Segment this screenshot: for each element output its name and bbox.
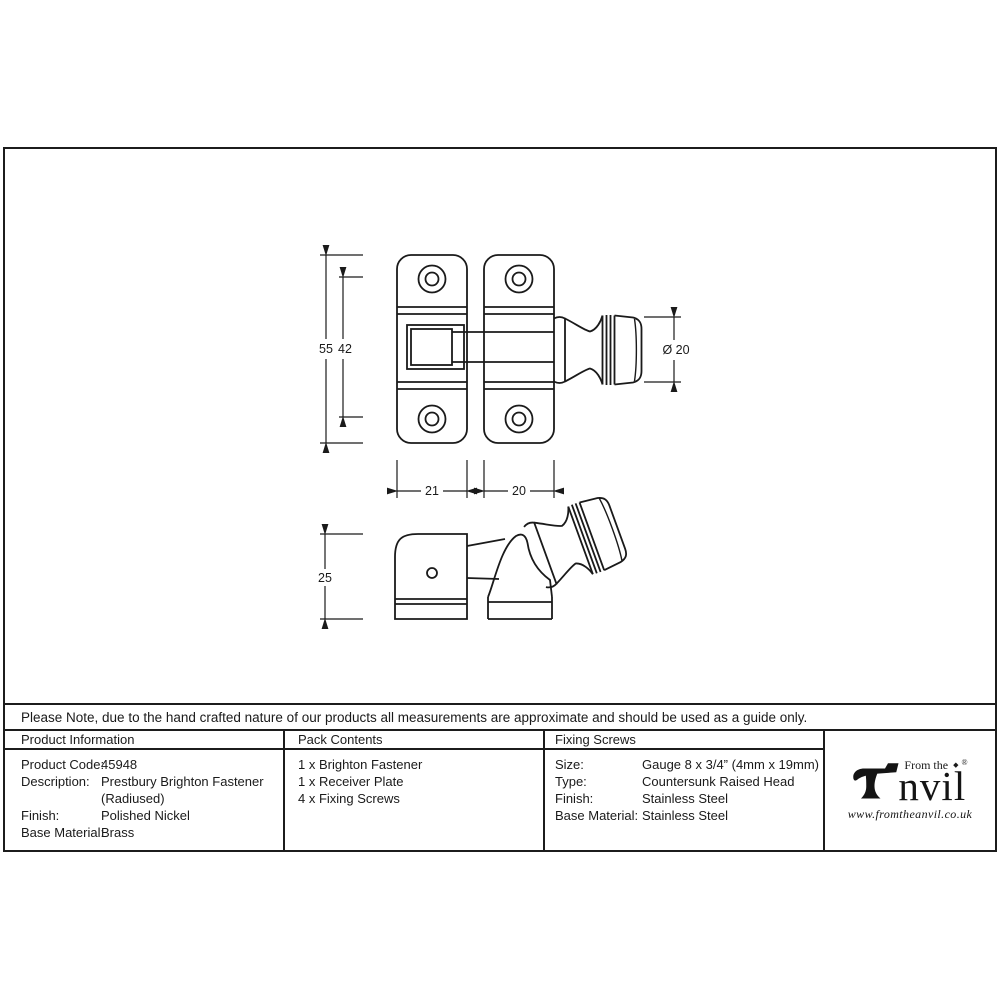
table-row: Base Material: Stainless Steel [555, 807, 819, 824]
knob-front [554, 315, 642, 385]
technical-drawing: 55 42 Ø 20 21 20 25 [5, 149, 995, 703]
product-information-column: Product Information Product Code: 45948 … [5, 731, 285, 850]
dim-overall-height: 55 [319, 342, 333, 356]
brand-name: nvil [898, 771, 967, 802]
note-text: Please Note, due to the hand crafted nat… [21, 710, 807, 725]
fixing-screws-column: Fixing Screws Size: Gauge 8 x 3/4” (4mm … [545, 731, 825, 850]
info-table: Product Information Product Code: 45948 … [5, 731, 995, 850]
screw-hole [506, 266, 533, 293]
anvil-icon [852, 761, 900, 803]
list-item: 4 x Fixing Screws [298, 790, 539, 807]
row-value: Prestbury Brighton Fastener [101, 773, 264, 790]
list-item: 1 x Brighton Fastener [298, 756, 539, 773]
dimension-lines [320, 255, 681, 619]
product-information-header: Product Information [5, 731, 283, 750]
table-row: (Radiused) [21, 790, 279, 807]
plate-band-lines [397, 307, 554, 389]
dim-plate-width-left: 21 [425, 484, 439, 498]
row-value: Gauge 8 x 3/4” (4mm x 19mm) [642, 756, 819, 773]
table-row: Finish: Polished Nickel [21, 807, 279, 824]
brand-website: www.fromtheanvil.co.uk [848, 807, 972, 822]
dim-knob-diameter: Ø 20 [662, 343, 689, 357]
table-row: Description: Prestbury Brighton Fastener [21, 773, 279, 790]
receiver-screw-hole [427, 568, 437, 578]
row-value: Stainless Steel [642, 807, 728, 824]
registered-mark: ® [961, 758, 967, 767]
fastener-front-view [397, 255, 642, 443]
screw-hole [419, 266, 446, 293]
dim-receiver-height: 25 [318, 571, 332, 585]
receiver-base-lines [395, 599, 467, 604]
row-value: Stainless Steel [642, 790, 728, 807]
logo-text: From the ◆ ® nvil [898, 759, 967, 802]
row-label: Finish: [21, 807, 101, 824]
dimension-labels: 55 42 Ø 20 21 20 25 [318, 342, 690, 585]
row-value: (Radiused) [101, 790, 165, 807]
logo-row: From the ◆ ® nvil [852, 759, 967, 803]
latch-arm [467, 539, 505, 579]
row-label: Base Material: [21, 824, 101, 841]
table-row: Base Material: Brass [21, 824, 279, 841]
table-row: Product Code: 45948 [21, 756, 279, 773]
dim-hole-spacing: 42 [338, 342, 352, 356]
anvil-logo: From the ◆ ® nvil www.fromtheanvil.co.uk [848, 759, 972, 822]
list-item: 1 x Receiver Plate [298, 773, 539, 790]
datasheet-frame: 55 42 Ø 20 21 20 25 Please Note, due to … [3, 147, 997, 852]
brand-cell: From the ◆ ® nvil www.fromtheanvil.co.uk [825, 731, 995, 850]
row-label: Finish: [555, 790, 642, 807]
pack-contents-column: Pack Contents 1 x Brighton Fastener 1 x … [285, 731, 545, 850]
table-row: Size: Gauge 8 x 3/4” (4mm x 19mm) [555, 756, 819, 773]
table-row: Finish: Stainless Steel [555, 790, 819, 807]
row-value: Brass [101, 824, 134, 841]
screw-hole [506, 406, 533, 433]
row-label: Description: [21, 773, 101, 790]
knob-side [523, 493, 630, 592]
pack-contents-header: Pack Contents [285, 731, 543, 750]
fixing-screws-body: Size: Gauge 8 x 3/4” (4mm x 19mm) Type: … [545, 750, 823, 824]
fixing-screws-header: Fixing Screws [545, 731, 823, 750]
datasheet-page: { "note": "Please Note, due to the hand … [0, 0, 1000, 1000]
receiver-side-view [395, 493, 630, 619]
receiver-block [395, 534, 467, 619]
table-row: Type: Countersunk Raised Head [555, 773, 819, 790]
note-row: Please Note, due to the hand crafted nat… [5, 703, 995, 731]
row-value: Polished Nickel [101, 807, 190, 824]
dim-plate-width-right: 20 [512, 484, 526, 498]
pack-contents-body: 1 x Brighton Fastener 1 x Receiver Plate… [285, 750, 543, 807]
right-plate [484, 255, 554, 443]
row-label: Product Code: [21, 756, 101, 773]
ext-lines-21-20 [397, 460, 554, 498]
row-label: Type: [555, 773, 642, 790]
row-value: Countersunk Raised Head [642, 773, 794, 790]
row-label: Base Material: [555, 807, 642, 824]
row-value: 45948 [101, 756, 137, 773]
screw-hole [419, 406, 446, 433]
row-label: Size: [555, 756, 642, 773]
latch-slider [411, 329, 452, 365]
row-label [21, 790, 101, 807]
product-information-body: Product Code: 45948 Description: Prestbu… [5, 750, 283, 841]
